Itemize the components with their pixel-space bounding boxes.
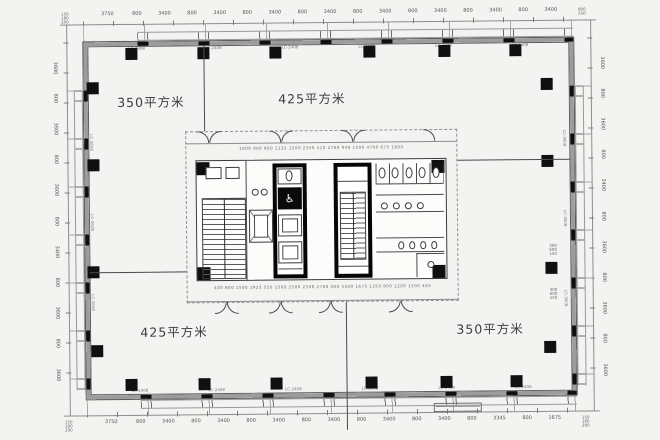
area-label-top-left: 350平方米: [96, 91, 206, 111]
dimension-value: 3400: [142, 10, 187, 17]
dimension-value: 3600: [600, 283, 609, 333]
entrance-canopy: [434, 403, 482, 412]
double-door: [215, 302, 239, 314]
elevator-car: [278, 241, 302, 263]
door-leaf: [389, 300, 401, 312]
sink-icon: [393, 202, 400, 209]
dimension-value: 3400: [528, 7, 573, 14]
dimension-value: 3600: [598, 99, 607, 149]
dimension-value: 200: [582, 424, 590, 428]
window-code-label: LC-2408: [175, 45, 252, 51]
column: [126, 379, 138, 391]
window-code-label: LC-3608: [562, 98, 568, 178]
sink-icon: [427, 261, 434, 268]
dimension-value: 3400: [418, 8, 463, 15]
urinal-icon: [409, 241, 415, 249]
dimension-column-right: 360080036008003400800360080036008003600: [597, 37, 609, 394]
urinal-icon: [431, 241, 437, 249]
column: [366, 377, 378, 389]
area-label-top-right: 425平方米: [257, 88, 367, 108]
stair-divider: [224, 199, 226, 278]
door-leaf: [319, 301, 331, 313]
dimension-value: 3400: [146, 418, 191, 425]
stair-1: [202, 198, 247, 279]
column: [269, 46, 281, 58]
door-leaf: [197, 131, 209, 143]
floor-plan-screenshot: 3750800340080034008003400800340080034008…: [0, 0, 660, 440]
corner-dims-bottom-right: 150180200: [582, 416, 590, 428]
floor-plan-drawing: 3750800340080034008003400800340080034008…: [0, 0, 660, 440]
corner-dims-top-right: 800350: [578, 8, 586, 16]
dimension-value: 3400: [367, 416, 412, 423]
accessible-elevator: ♿: [278, 187, 302, 209]
column: [544, 341, 556, 353]
double-door: [389, 300, 413, 312]
core-corner-column: [432, 265, 445, 278]
corner-dims-bottom-left: 150180200: [65, 420, 73, 432]
dimension-value: 3400: [256, 417, 301, 424]
column: [125, 48, 137, 60]
dimension-column-left: 360080036008003600800340080036008003600: [50, 43, 62, 400]
service-shaft-inner: [254, 215, 268, 238]
wheelchair-icon: ♿: [285, 192, 295, 205]
dimension-value: 3600: [50, 43, 59, 93]
dimension-value: 350: [578, 12, 586, 16]
door-leaf: [209, 131, 221, 143]
double-door: [269, 130, 293, 142]
dimension-value: 800: [136, 419, 147, 426]
sink-icon: [417, 202, 424, 209]
stair-divider: [353, 193, 355, 259]
column: [363, 46, 375, 58]
door-leaf: [269, 301, 281, 313]
dimension-value: 200: [65, 428, 73, 432]
dimension-value: 3750: [83, 11, 132, 18]
dimension-value: 3600: [597, 37, 606, 87]
dimension-value: 800: [600, 272, 609, 283]
door-leaf: [341, 130, 353, 142]
double-door: [197, 131, 221, 143]
service-shaft: [249, 210, 273, 243]
dimension-value: 3600: [599, 221, 608, 271]
toilet-icon: [286, 170, 293, 181]
column: [438, 45, 450, 57]
dimension-value: 800: [598, 149, 607, 160]
core-room: [205, 167, 221, 179]
dimension-value: 3400: [363, 8, 408, 15]
area-label-bottom-right: 350平方米: [435, 318, 545, 338]
dimension-value: 3400: [598, 160, 607, 210]
dimension-value: 3400: [308, 9, 353, 16]
dimension-value: 3400: [312, 417, 357, 424]
dimension-value: 800: [411, 416, 422, 423]
sink-icon: [381, 202, 388, 209]
window-code-label: LC-3608: [563, 258, 569, 338]
column: [541, 155, 553, 167]
dimension-value: 800: [352, 9, 363, 16]
corner-dims-top-left: 150180200: [61, 12, 69, 24]
dimension-value: 800: [467, 416, 478, 423]
door-leaf: [353, 130, 365, 142]
dimension-value: 800: [301, 417, 312, 424]
sink-icon: [405, 202, 412, 209]
dimension-value: 800: [522, 415, 533, 422]
urinal-icon: [398, 241, 404, 249]
column: [509, 44, 521, 56]
window-code-label: LC-2408: [252, 44, 329, 50]
dimension-value: 3400: [422, 416, 467, 423]
dimension-value: 800: [191, 418, 202, 425]
dimension-value: 800: [187, 10, 198, 17]
dimension-value: 1675: [532, 415, 577, 422]
dimension-value: 200: [61, 20, 69, 24]
door-leaf: [401, 300, 413, 312]
dimension-value: 800: [242, 10, 253, 17]
urinal-icon: [420, 241, 426, 249]
dimension-value: 800: [52, 216, 61, 227]
window-code-label: LC-3608: [90, 182, 96, 262]
door-leaf: [281, 130, 293, 142]
dimension-value: 800: [356, 417, 367, 424]
core-partition: [278, 268, 302, 269]
dimension-value: 3400: [252, 9, 297, 16]
column: [441, 376, 453, 388]
column: [91, 345, 103, 357]
door-leaf: [281, 301, 293, 313]
door-leaf: [215, 302, 227, 314]
elevator-car-inner: [282, 245, 298, 259]
dimension-value: 800: [246, 418, 257, 425]
double-door: [269, 301, 293, 313]
dimension-value: 3600: [51, 104, 60, 154]
dimension-value: 3400: [197, 10, 242, 17]
dimension-value: 800: [51, 93, 60, 104]
column: [510, 375, 522, 387]
toilet-icon: [405, 167, 412, 178]
window-code-label: LC-2408: [485, 384, 562, 390]
core-partition: [416, 253, 417, 277]
column: [541, 78, 553, 90]
dimension-value: 800: [51, 154, 60, 165]
toilet-icon: [378, 167, 385, 178]
dimension-value: 3345: [477, 415, 522, 422]
core-room: [225, 167, 239, 179]
window-code-label: LC-2408: [102, 387, 179, 393]
dimension-value: 3750: [87, 419, 136, 426]
column: [271, 377, 283, 389]
stair-2: [340, 192, 367, 260]
dimension-value: 3600: [53, 288, 62, 338]
elevator-car: [278, 214, 302, 236]
elevator-car-inner: [282, 218, 298, 232]
dimension-value: 800: [518, 7, 529, 14]
dimension-value: 3600: [51, 165, 60, 215]
door-leaf: [269, 130, 281, 142]
toilet-icon: [418, 167, 425, 178]
area-label-bottom-left: 425平方米: [119, 321, 229, 341]
dimension-value: 800: [132, 11, 143, 18]
column: [545, 262, 557, 274]
dimension-value: 800: [53, 277, 62, 288]
column: [199, 378, 211, 390]
dimension-value: 800: [463, 8, 474, 15]
dimension-value: 3400: [473, 7, 518, 14]
single-door: [423, 129, 435, 141]
window-code-label: LC-2408: [178, 387, 255, 393]
dimension-value: 3400: [52, 227, 61, 277]
dimension-value: 800: [53, 338, 62, 349]
dimension-value: 800: [600, 333, 609, 344]
dimension-value: 3600: [600, 344, 609, 394]
dimension-value: 800: [408, 8, 419, 15]
canopy-inner-line: [436, 406, 480, 409]
dimension-value: 800: [598, 88, 607, 99]
dimension-value: 3400: [201, 418, 246, 425]
column: [87, 159, 99, 171]
dimension-value: 3600: [53, 349, 62, 399]
door-leaf: [227, 302, 239, 314]
window-code-label: LC-3608: [563, 178, 569, 258]
window-code-label: LC-2408: [255, 386, 332, 392]
door-leaf: [331, 301, 343, 313]
double-door: [341, 130, 365, 142]
fixture: [252, 189, 259, 196]
dimension-value: 800: [599, 210, 608, 221]
door-leaf: [423, 129, 435, 141]
double-door: [319, 301, 343, 313]
dimension-value: 800: [297, 9, 308, 16]
toilet-icon: [432, 167, 439, 178]
fixture: [261, 189, 268, 196]
toilet-icon: [391, 167, 398, 178]
